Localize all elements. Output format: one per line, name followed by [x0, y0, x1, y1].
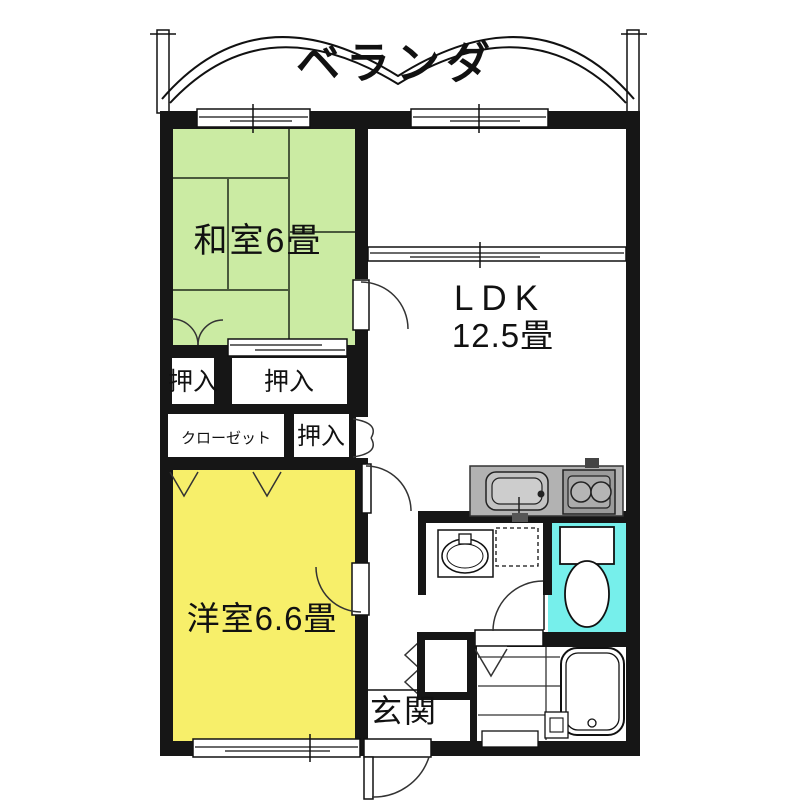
door-washitsu-ldk: [353, 280, 408, 330]
toilet: [560, 527, 614, 627]
fusuma-sliding-door: [228, 339, 347, 356]
wall-toilet-south: [543, 632, 633, 647]
youshitsu-label: 洋室6.6畳: [187, 600, 338, 637]
door-washroom: [475, 581, 544, 646]
toilet-tank: [560, 527, 614, 564]
wall-center-a: [355, 111, 368, 279]
door-bathroom-fold: [475, 649, 507, 676]
washitsu-label: 和室6畳: [194, 222, 323, 260]
wall-center-b: [355, 329, 368, 417]
kitchen-counter: [470, 458, 623, 522]
balcony-label: ベランダ: [296, 39, 496, 88]
washing-machine-space: [496, 528, 538, 566]
oshiire-lower-label: 押入: [297, 423, 345, 450]
kitchen-stove: [563, 470, 615, 514]
bath-step: [545, 712, 568, 738]
wall-center-d: [355, 614, 368, 742]
ldk-partition-sliding: [368, 242, 626, 268]
toilet-bowl: [565, 561, 609, 627]
genkan-label: 玄関: [370, 693, 438, 729]
bathroom-window: [482, 731, 538, 747]
door-entrance: [364, 739, 431, 799]
oshiire-top-left-label: 押入: [168, 368, 218, 396]
door-genkan-storage-fold: [405, 642, 419, 695]
washroom: [438, 528, 538, 577]
genkan-storage-box: [425, 640, 467, 692]
range-hood-knob: [585, 458, 599, 468]
ldk-size-label: 12.5畳: [452, 317, 554, 354]
door-oshiire-fold: [353, 419, 373, 457]
washbasin: [438, 530, 493, 577]
wall-right: [626, 111, 640, 756]
floor-plan: ベランダ: [0, 0, 800, 800]
genkan: [368, 632, 475, 700]
balcony-right-wall: [627, 30, 639, 113]
balcony: ベランダ: [150, 30, 647, 113]
ldk-label: LDK: [454, 279, 546, 318]
door-ldk-corridor: [362, 464, 411, 513]
closet-label: クローゼット: [181, 430, 271, 447]
floor-plan-canvas: ベランダ: [0, 0, 800, 800]
wall-washroom-west: [418, 511, 426, 595]
bathtub: [561, 648, 624, 735]
oshiire-top-right-label: 押入: [264, 368, 314, 396]
balcony-left-wall: [157, 30, 169, 113]
